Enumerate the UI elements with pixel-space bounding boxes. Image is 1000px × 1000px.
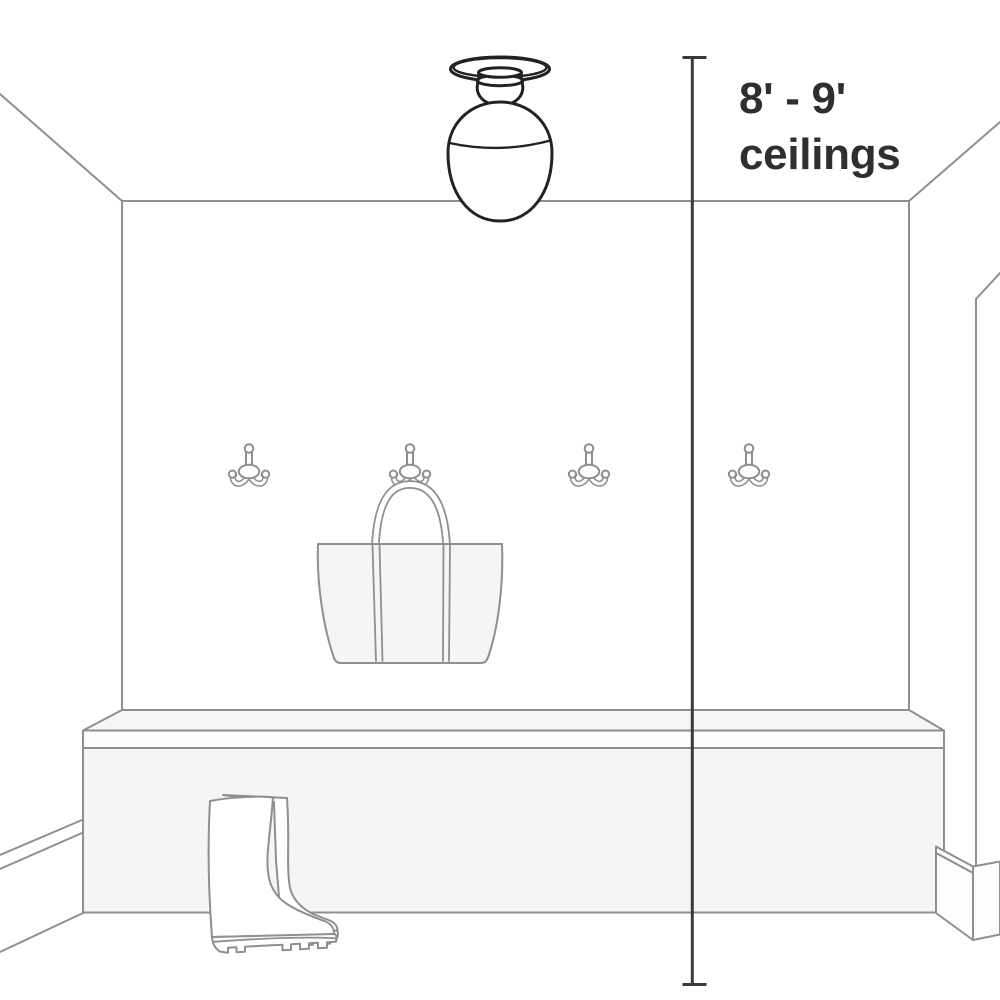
bench-top	[83, 710, 944, 731]
right-ceiling-corner-line	[909, 122, 1000, 201]
ceiling-height-subject: ceilings	[739, 127, 900, 183]
light-glass-globe	[448, 102, 552, 221]
ceiling-height-range: 8' - 9'	[739, 71, 900, 127]
coat-hook-4	[729, 444, 769, 484]
coat-hook-2	[390, 444, 430, 484]
room-illustration: 8' - 9' ceilings	[0, 0, 1000, 1000]
coat-hook-3	[569, 444, 609, 484]
right-baseboard	[936, 847, 1000, 941]
ceiling-height-label: 8' - 9' ceilings	[739, 71, 900, 183]
tote-bag	[318, 485, 502, 664]
ceiling-light	[448, 57, 552, 221]
left-ceiling-corner-line	[0, 94, 122, 201]
bench-top-edge-band	[83, 731, 944, 749]
bag-body	[318, 544, 502, 663]
light-neck-upper-ring	[479, 68, 522, 78]
baseboard-front-face	[973, 862, 1000, 941]
left-floor-line	[0, 913, 83, 952]
doorway-top-edge	[976, 273, 1000, 299]
bag-handle	[376, 485, 447, 545]
coat-hook-1	[229, 444, 269, 484]
